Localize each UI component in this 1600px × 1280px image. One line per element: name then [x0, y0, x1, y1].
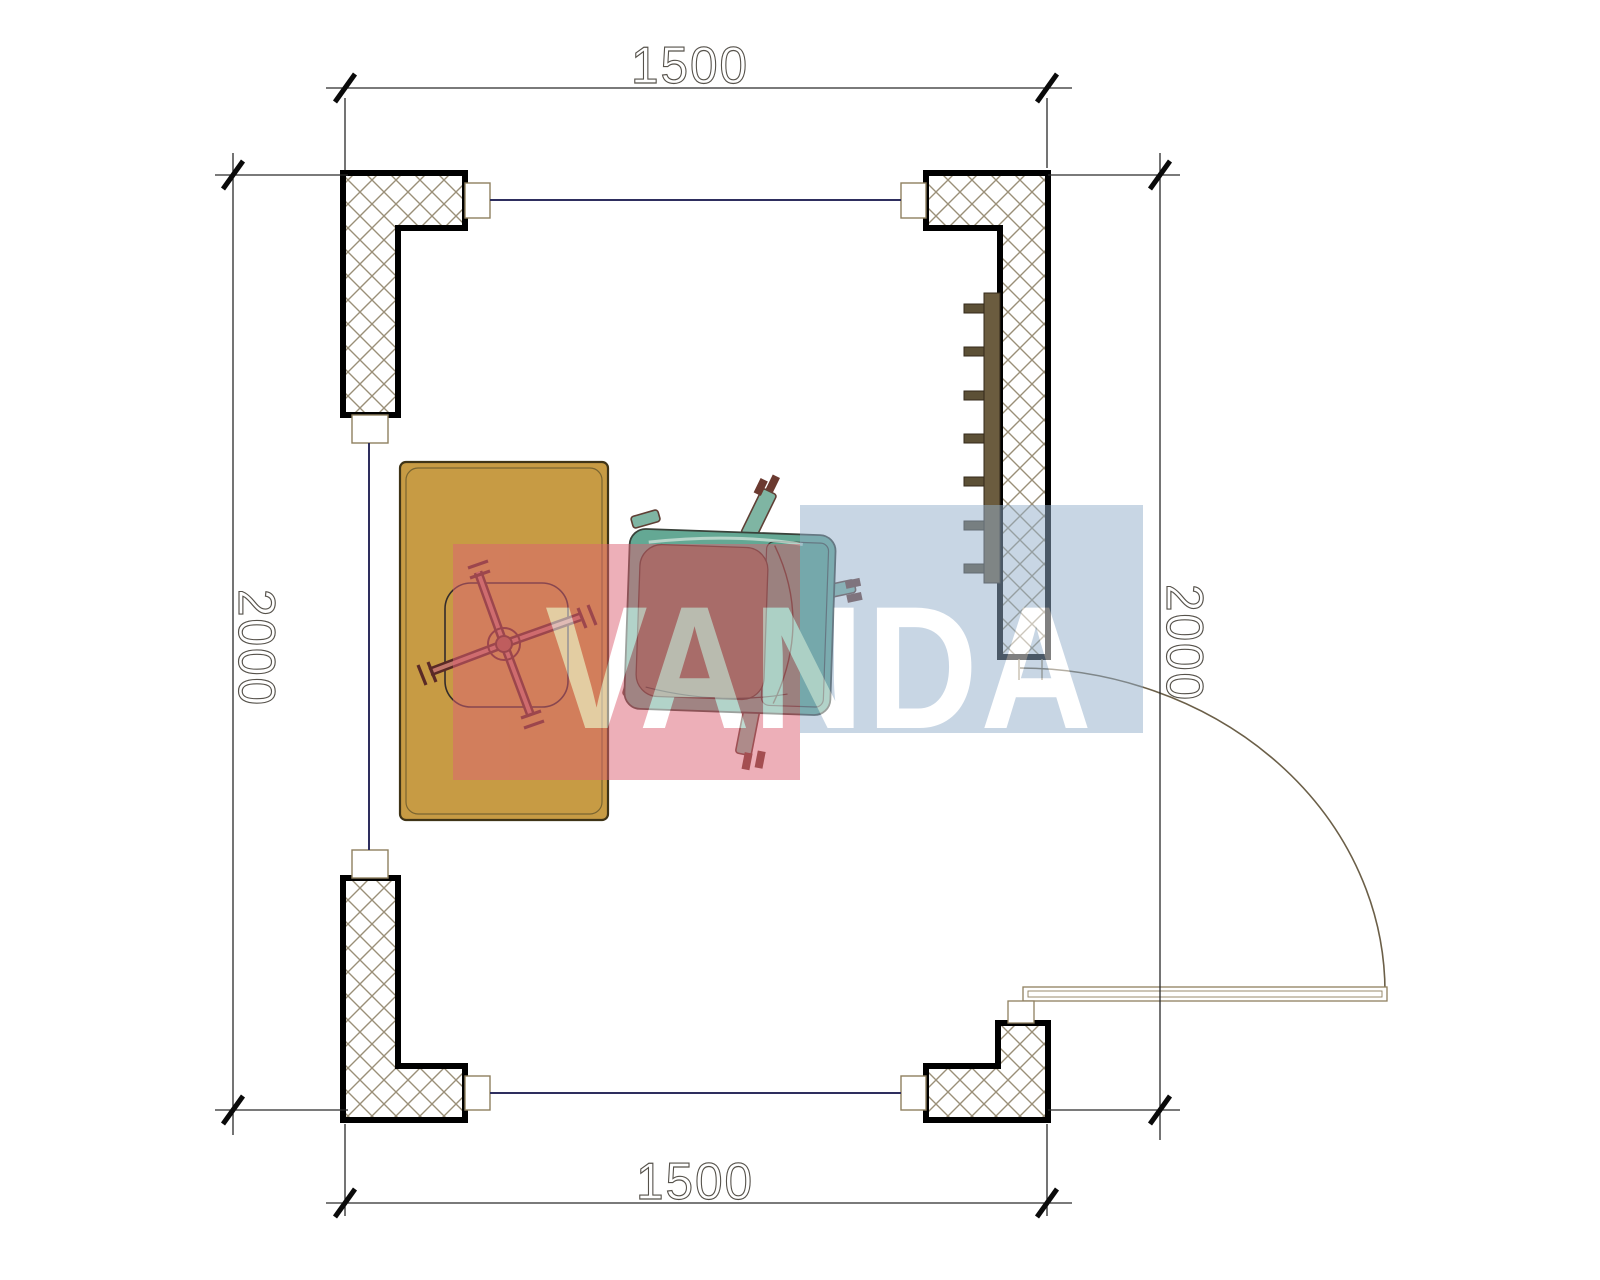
window-frame: [901, 1076, 926, 1110]
wall-top-left: [343, 173, 465, 415]
window-frame: [465, 1076, 490, 1110]
armchair-cushion: [635, 544, 768, 700]
window-frame: [901, 183, 926, 218]
window-frame: [352, 415, 388, 443]
dim-label-top: 1500: [631, 37, 749, 95]
radiator-bar: [984, 293, 1000, 583]
dim-label-right: 2000: [1155, 584, 1213, 702]
door-leaf: [1023, 987, 1387, 1001]
dim-label-bottom: 1500: [636, 1153, 754, 1211]
wall-shelf-radiator: [964, 293, 1000, 583]
door-swing-arc: [1020, 668, 1385, 992]
plan-drawing: 1500 1500 2000 2000: [0, 0, 1600, 1280]
dim-label-left: 2000: [227, 589, 285, 707]
window-frame: [352, 850, 388, 878]
door-hinge-block: [1008, 1001, 1034, 1023]
floor-plan-canvas: 1500 1500 2000 2000 VANDA: [0, 0, 1600, 1280]
wall-bottom-right: [926, 1023, 1048, 1120]
armchair: [620, 469, 867, 774]
wall-bottom-left: [343, 878, 465, 1120]
door: [1008, 659, 1387, 1023]
armchair-backrest: [761, 541, 829, 707]
window-frame: [465, 183, 490, 218]
